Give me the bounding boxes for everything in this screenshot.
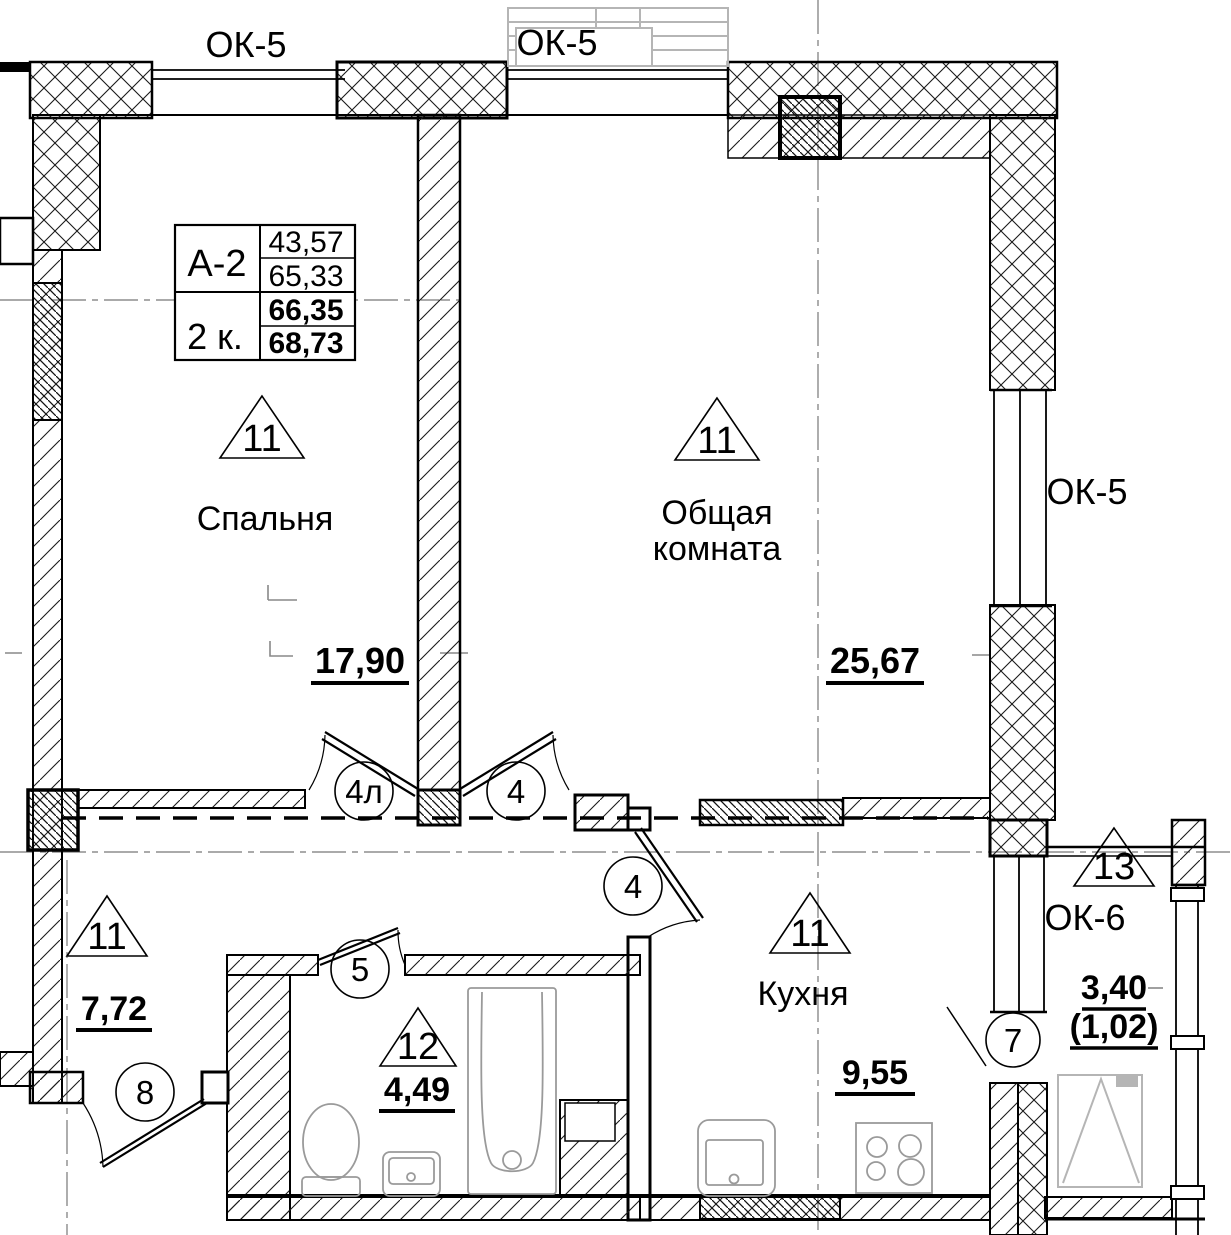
wall-segment — [990, 605, 1055, 820]
unit-area-2: 65,33 — [268, 260, 343, 293]
wall-segment — [728, 62, 1057, 118]
unit-area-3: 66,35 — [268, 294, 343, 327]
window-label-right: ОК-5 — [1047, 471, 1128, 512]
wall-bottom-dense — [700, 1196, 840, 1219]
pilaster — [780, 97, 840, 158]
outer-walls — [0, 62, 1057, 1103]
mark-number-bedroom: 11 — [242, 418, 281, 460]
balcony-area-secondary-label: (1,02) — [1070, 1008, 1159, 1046]
window-label-top-center: ОК-5 — [517, 22, 598, 63]
tilt-window-symbol — [1058, 1075, 1142, 1187]
kitchen-sink — [698, 1120, 775, 1196]
bedroom-name-label: Спальня — [197, 500, 334, 538]
wall-stub — [0, 218, 33, 264]
balcony-door-leader — [947, 1007, 986, 1066]
floor-plan: А-2 2 к. 43,57 65,33 66,35 68,73 11 11 1… — [0, 0, 1231, 1235]
window-label-balcony: ОК-6 — [1045, 897, 1126, 938]
wall-segment — [30, 62, 152, 118]
mark-number-balcony: 13 — [1093, 846, 1135, 888]
wall-bottom — [227, 1195, 640, 1220]
pilaster — [28, 790, 78, 850]
unit-rooms-label: 2 к. — [187, 316, 243, 357]
wall-stub — [0, 62, 30, 72]
kitchen-name-label: Кухня — [758, 975, 849, 1013]
wall-segment — [990, 820, 1047, 856]
living-name-label-1: Общая — [661, 494, 772, 532]
wall-bath-top — [227, 955, 318, 975]
balcony-bottom-wall — [1045, 1197, 1172, 1218]
wall-living-bottom — [700, 800, 843, 825]
wall-inner-layer — [728, 115, 990, 158]
door-tag-kitchen: 4 — [624, 868, 642, 905]
wall-segment — [33, 115, 100, 250]
wall-living-bottom — [843, 798, 990, 818]
wall-segment — [990, 115, 1055, 390]
wall-segment — [990, 1083, 1018, 1235]
door-tag-bedroom: 4л — [345, 773, 383, 810]
living-name-label-2: комната — [653, 530, 782, 568]
bath-sink — [383, 1152, 440, 1196]
bedroom-area-label: 17,90 — [315, 640, 405, 681]
hall-area-label: 7,72 — [81, 990, 147, 1028]
door-tag-bathroom: 5 — [351, 951, 369, 988]
toilet — [302, 1104, 360, 1196]
window-balcony-left — [990, 856, 1047, 1012]
unit-info-table: А-2 2 к. 43,57 65,33 66,35 68,73 — [175, 225, 355, 360]
balcony-area-label: 3,40 — [1081, 969, 1147, 1007]
mark-number-hall: 11 — [87, 916, 126, 958]
living-area-label: 25,67 — [830, 640, 920, 681]
door-tag-entrance: 8 — [136, 1074, 154, 1111]
wall-stub — [0, 1052, 33, 1086]
window-label-top-left: ОК-5 — [206, 24, 287, 65]
stove — [856, 1123, 932, 1193]
wall-hall-bottom — [30, 1072, 83, 1103]
kitchen-area-label: 9,55 — [842, 1054, 908, 1092]
partition-bedroom-living — [418, 115, 460, 790]
wall-bath-kitchen — [628, 937, 650, 1220]
window-pier — [33, 283, 62, 420]
mark-number-kitchen: 11 — [790, 913, 829, 955]
wall-bedroom-bottom — [78, 790, 305, 808]
door-tag-living: 4 — [507, 773, 525, 810]
bathtub — [468, 988, 556, 1194]
kitchen-fixtures — [698, 1120, 932, 1196]
door-jamb — [202, 1072, 228, 1103]
unit-area-4: 68,73 — [268, 327, 343, 360]
wall-segment — [1018, 1083, 1047, 1235]
wall-bath-top — [405, 955, 640, 975]
duct-opening — [565, 1103, 615, 1141]
mark-number-living: 11 — [697, 420, 736, 462]
wall-segment — [1172, 820, 1205, 885]
bathroom-area-label: 4,49 — [384, 1071, 450, 1109]
door-kitchen — [635, 828, 703, 937]
room-labels: Спальня Общая комната Кухня — [197, 494, 849, 1013]
mark-number-bathroom: 12 — [397, 1026, 439, 1068]
floor-plan-canvas: А-2 2 к. 43,57 65,33 66,35 68,73 11 11 1… — [0, 0, 1231, 1235]
window-ok5-right — [990, 390, 1052, 606]
unit-type-label: А-2 — [187, 243, 246, 285]
wall-bath-left — [227, 975, 290, 1220]
door-jamb — [575, 795, 628, 830]
unit-area-1: 43,57 — [268, 226, 343, 259]
door-tag-balcony: 7 — [1004, 1022, 1022, 1059]
window-balcony-right — [1171, 885, 1204, 1235]
wall-segment — [337, 62, 507, 118]
